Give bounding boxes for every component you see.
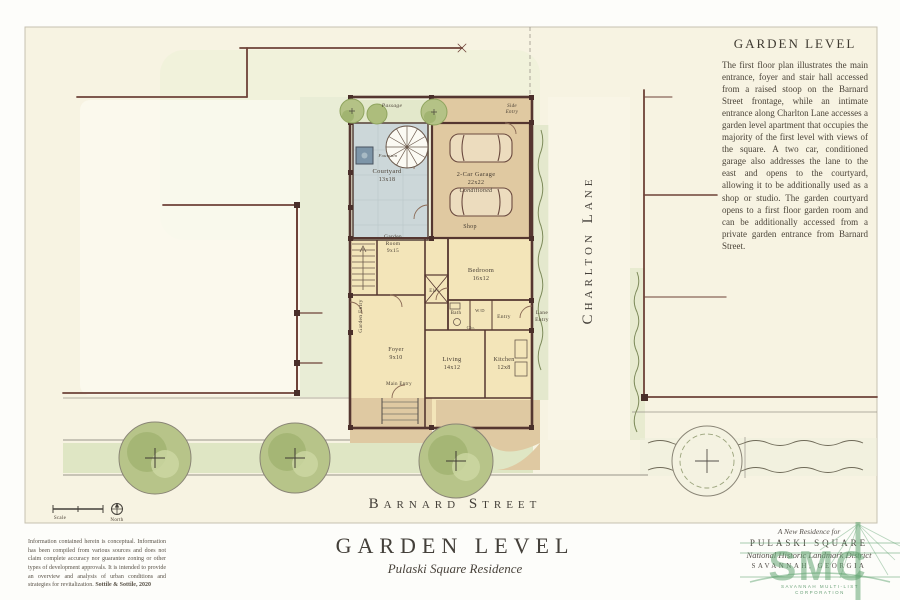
plan-label: Passage [381, 103, 403, 109]
plan-label: Living [442, 356, 462, 363]
project-logo-block: A New Residence for PULASKI SQUARE Natio… [733, 527, 885, 570]
lane-tree [672, 426, 742, 496]
disclaimer-text: Information contained herein is conceptu… [28, 538, 166, 590]
plan-label: Foyer [388, 347, 404, 353]
plan-label: Scale [54, 516, 67, 521]
street-trees [119, 422, 493, 498]
plan-label: Conditioned [460, 188, 494, 194]
plan-label: 22x22 [468, 180, 485, 186]
plan-label: 13x18 [379, 177, 396, 183]
plan-label: Clo. [467, 325, 476, 330]
plan-label: 2-Car Garage [457, 171, 496, 178]
disclaimer-credit: Sottile & Sottile, 2020 [95, 582, 151, 588]
plan-label: Fountain [378, 153, 398, 158]
note-title: GARDEN LEVEL [722, 36, 868, 52]
plan-label: Side [507, 104, 517, 109]
plan-label: 14x12 [444, 365, 461, 371]
plan-label: Entry [505, 110, 519, 115]
fountain [356, 147, 373, 164]
drawing-sheet: PassageSideEntryFountainCourtyard13x182-… [0, 0, 900, 600]
charlton-lane-label: Charlton Lane [580, 165, 600, 335]
plan-label: Garden [384, 234, 402, 240]
plan-label: Shop [463, 224, 477, 230]
plan-label: 9x15 [387, 248, 399, 254]
title-block: GARDEN LEVEL Pulaski Square Residence [295, 533, 615, 577]
plan-label: Bath [451, 311, 462, 316]
plan-label: Courtyard [372, 168, 402, 175]
north-arrow-icon [112, 503, 123, 515]
plan-label: Garden Entry [358, 299, 364, 332]
note-body: The first floor plan illustrates the mai… [722, 59, 868, 252]
sheet-title: GARDEN LEVEL [295, 533, 615, 559]
plan-label: 16x12 [473, 276, 490, 282]
plan-label: Entry [497, 314, 511, 320]
sheet-subtitle: Pulaski Square Residence [295, 561, 615, 577]
garden-level-note: GARDEN LEVEL The first floor plan illust… [722, 36, 868, 252]
plan-label: W/D [475, 308, 485, 313]
plan-label: Entry [535, 317, 549, 323]
spiral-stair [386, 126, 428, 168]
barnard-street-label: Barnard Street [320, 496, 590, 513]
logo-line-pulaski-square: PULASKI SQUARE [733, 538, 885, 548]
plan-label: 9x10 [389, 355, 402, 361]
plan-label: Room [386, 241, 401, 247]
plan-label: Bedroom [468, 267, 494, 274]
plan-label: 12x8 [497, 365, 510, 371]
logo-line-savannah: SAVANNAH, GEORGIA [733, 562, 885, 570]
plan-label: Main Entry [386, 382, 412, 387]
logo-line-district: National Historic Landmark District [733, 550, 885, 560]
plan-label: Lane [536, 310, 548, 316]
plan-label: Kitchen [493, 357, 514, 363]
plan-label: Elev. [429, 289, 441, 294]
logo-line-residence: A New Residence for [733, 527, 885, 536]
plan-label: North [110, 518, 123, 523]
